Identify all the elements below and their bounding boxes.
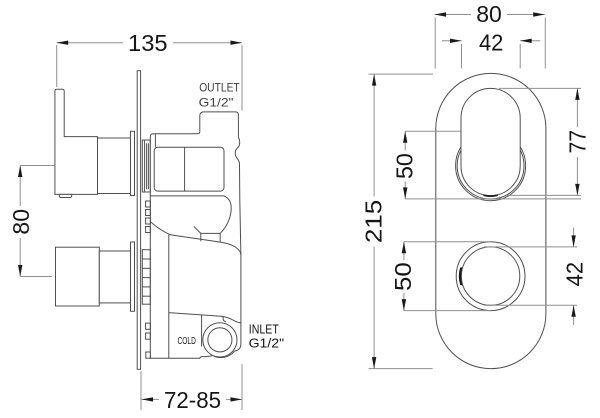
svg-text:215: 215: [360, 200, 386, 243]
svg-text:80: 80: [476, 1, 502, 27]
svg-text:G1/2": G1/2": [249, 335, 285, 350]
svg-text:COLD: COLD: [178, 335, 197, 347]
svg-text:OUTLET: OUTLET: [199, 81, 240, 95]
svg-text:50: 50: [390, 262, 416, 291]
svg-text:80: 80: [8, 209, 34, 235]
svg-text:42: 42: [561, 262, 587, 287]
svg-text:77: 77: [565, 130, 591, 154]
svg-text:72-85: 72-85: [164, 387, 221, 413]
svg-text:INLET: INLET: [249, 321, 279, 336]
svg-text:42: 42: [479, 29, 504, 55]
svg-text:135: 135: [128, 30, 168, 56]
svg-text:50: 50: [391, 153, 417, 179]
svg-text:G1/2": G1/2": [199, 95, 234, 109]
